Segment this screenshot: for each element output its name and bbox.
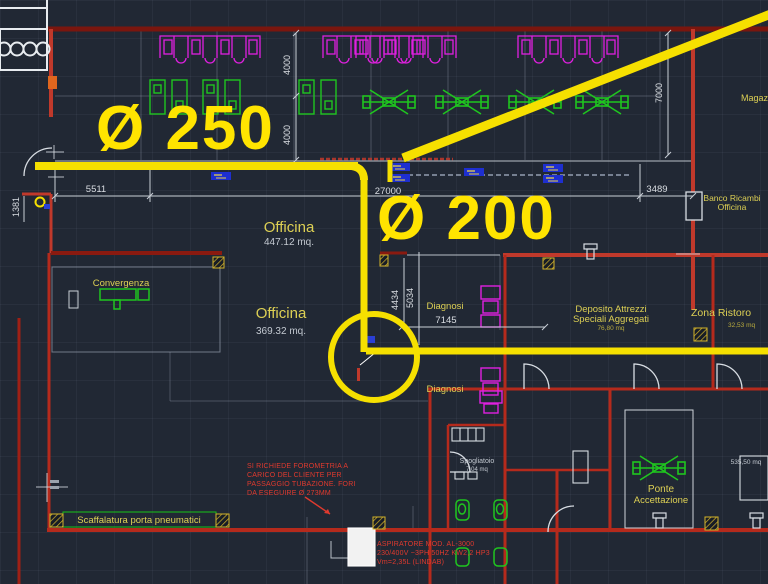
room-zona-ristoro-area: 32,53 mq [728, 322, 755, 329]
furniture-lifts [363, 90, 628, 114]
pipe-diagonal [403, 12, 768, 158]
room-deposito-line2: Speciali Aggregati [573, 314, 649, 325]
area-grande-label: 535,50 mq [731, 459, 762, 466]
door-arc [524, 364, 549, 389]
dim-4000a: 4000 [282, 55, 292, 75]
selection-chip [464, 168, 484, 176]
dim-5034: 5034 [405, 288, 415, 308]
room-magazzino-label: Magazzino [741, 93, 768, 103]
convergenza-equipment [100, 289, 149, 309]
dim-3489: 3489 [646, 184, 667, 195]
car-lift-symbol [633, 456, 685, 480]
valve-symbol [36, 198, 45, 207]
note-aspiratore-l2: 230/400V ~3PH 50HZ KW2,2 HP3 [377, 550, 490, 557]
dim-7145: 7145 [435, 315, 456, 326]
dim-4000b: 4000 [282, 125, 292, 145]
note-forometria-l1: SI RICHIEDE FOROMETRIA A [247, 463, 348, 470]
compressor-box [348, 528, 375, 566]
dimensions [24, 30, 696, 345]
room-ponte-line1: Ponte [648, 484, 675, 495]
note-aspiratore-l1: ASPIRATORE MOD. AL-3000 [377, 541, 474, 548]
room-spogliatoio-label: Spogliatoio [460, 458, 495, 465]
note-forometria-l3: PASSAGGIO TUBAZIONE. FORI [247, 481, 356, 488]
selection-chip [390, 163, 410, 171]
pilasters-hatched [50, 255, 718, 530]
note-forometria: SI RICHIEDE FOROMETRIA A CARICO DEL CLIE… [247, 463, 356, 514]
floor-plan-drawing: 5511 27000 3489 4000 4000 7000 4434 5034… [0, 0, 768, 584]
scaffalatura-label: Scaffalatura porta pneumatici [77, 515, 200, 526]
room-diagnosi1-label: Diagnosi [427, 301, 464, 312]
cad-canvas[interactable]: 5511 27000 3489 4000 4000 7000 4434 5034… [0, 0, 768, 584]
room-spogliatoio-area: 7,04 mq [466, 467, 488, 473]
room-officina1-area: 447.12 mq. [264, 237, 314, 248]
room-zona-ristoro-label: Zona Ristoro [691, 307, 751, 319]
room-officina1-label: Officina [264, 219, 315, 236]
structure-lines-bright [52, 161, 693, 558]
room-convergenza-label: Convergenza [93, 278, 150, 289]
room-officina2-label: Officina [256, 305, 307, 322]
dim-7000: 7000 [654, 83, 664, 103]
note-forometria-l2: CARICO DEL CLIENTE PER [247, 472, 342, 479]
highlight-circle [331, 314, 417, 400]
room-officina2-area: 369.32 mq. [256, 326, 306, 337]
pipe-label-200: Ø 200 [377, 184, 556, 253]
pipe-elbow [352, 166, 364, 180]
room-deposito-area: 76,80 mq [597, 325, 624, 332]
room-ponte-line2: Accettazione [634, 495, 688, 506]
selection-chip [543, 175, 563, 183]
room-banco-line2: Officina [718, 202, 747, 212]
circle-symbol [24, 43, 37, 56]
equipment-item [69, 291, 78, 308]
entrance-detail [0, 0, 50, 70]
ponte-accettazione-bay [625, 410, 693, 528]
note-aspiratore: ASPIRATORE MOD. AL-3000 230/400V ~3PH 50… [377, 541, 490, 566]
room-diagnosi2-label: Diagnosi [427, 384, 464, 395]
door-arc [717, 364, 742, 389]
dim-1381: 1381 [11, 197, 21, 217]
selection-chip [390, 174, 410, 182]
dim-4434: 4434 [390, 290, 400, 310]
wall-marker [48, 76, 57, 89]
pipe-label-250: Ø 250 [96, 94, 275, 163]
workstations-magenta [160, 36, 618, 63]
selection-chip [543, 164, 563, 172]
selection-chip [211, 172, 231, 180]
circle-symbol [0, 43, 11, 56]
dim-5511: 5511 [86, 184, 106, 195]
note-aspiratore-l3: Vm=2,35L (LINDAB) [377, 559, 444, 566]
circle-symbol [11, 43, 24, 56]
note-forometria-l4: DA ESEGUIRE Ø 273MM [247, 490, 331, 497]
door-arc [634, 364, 659, 389]
